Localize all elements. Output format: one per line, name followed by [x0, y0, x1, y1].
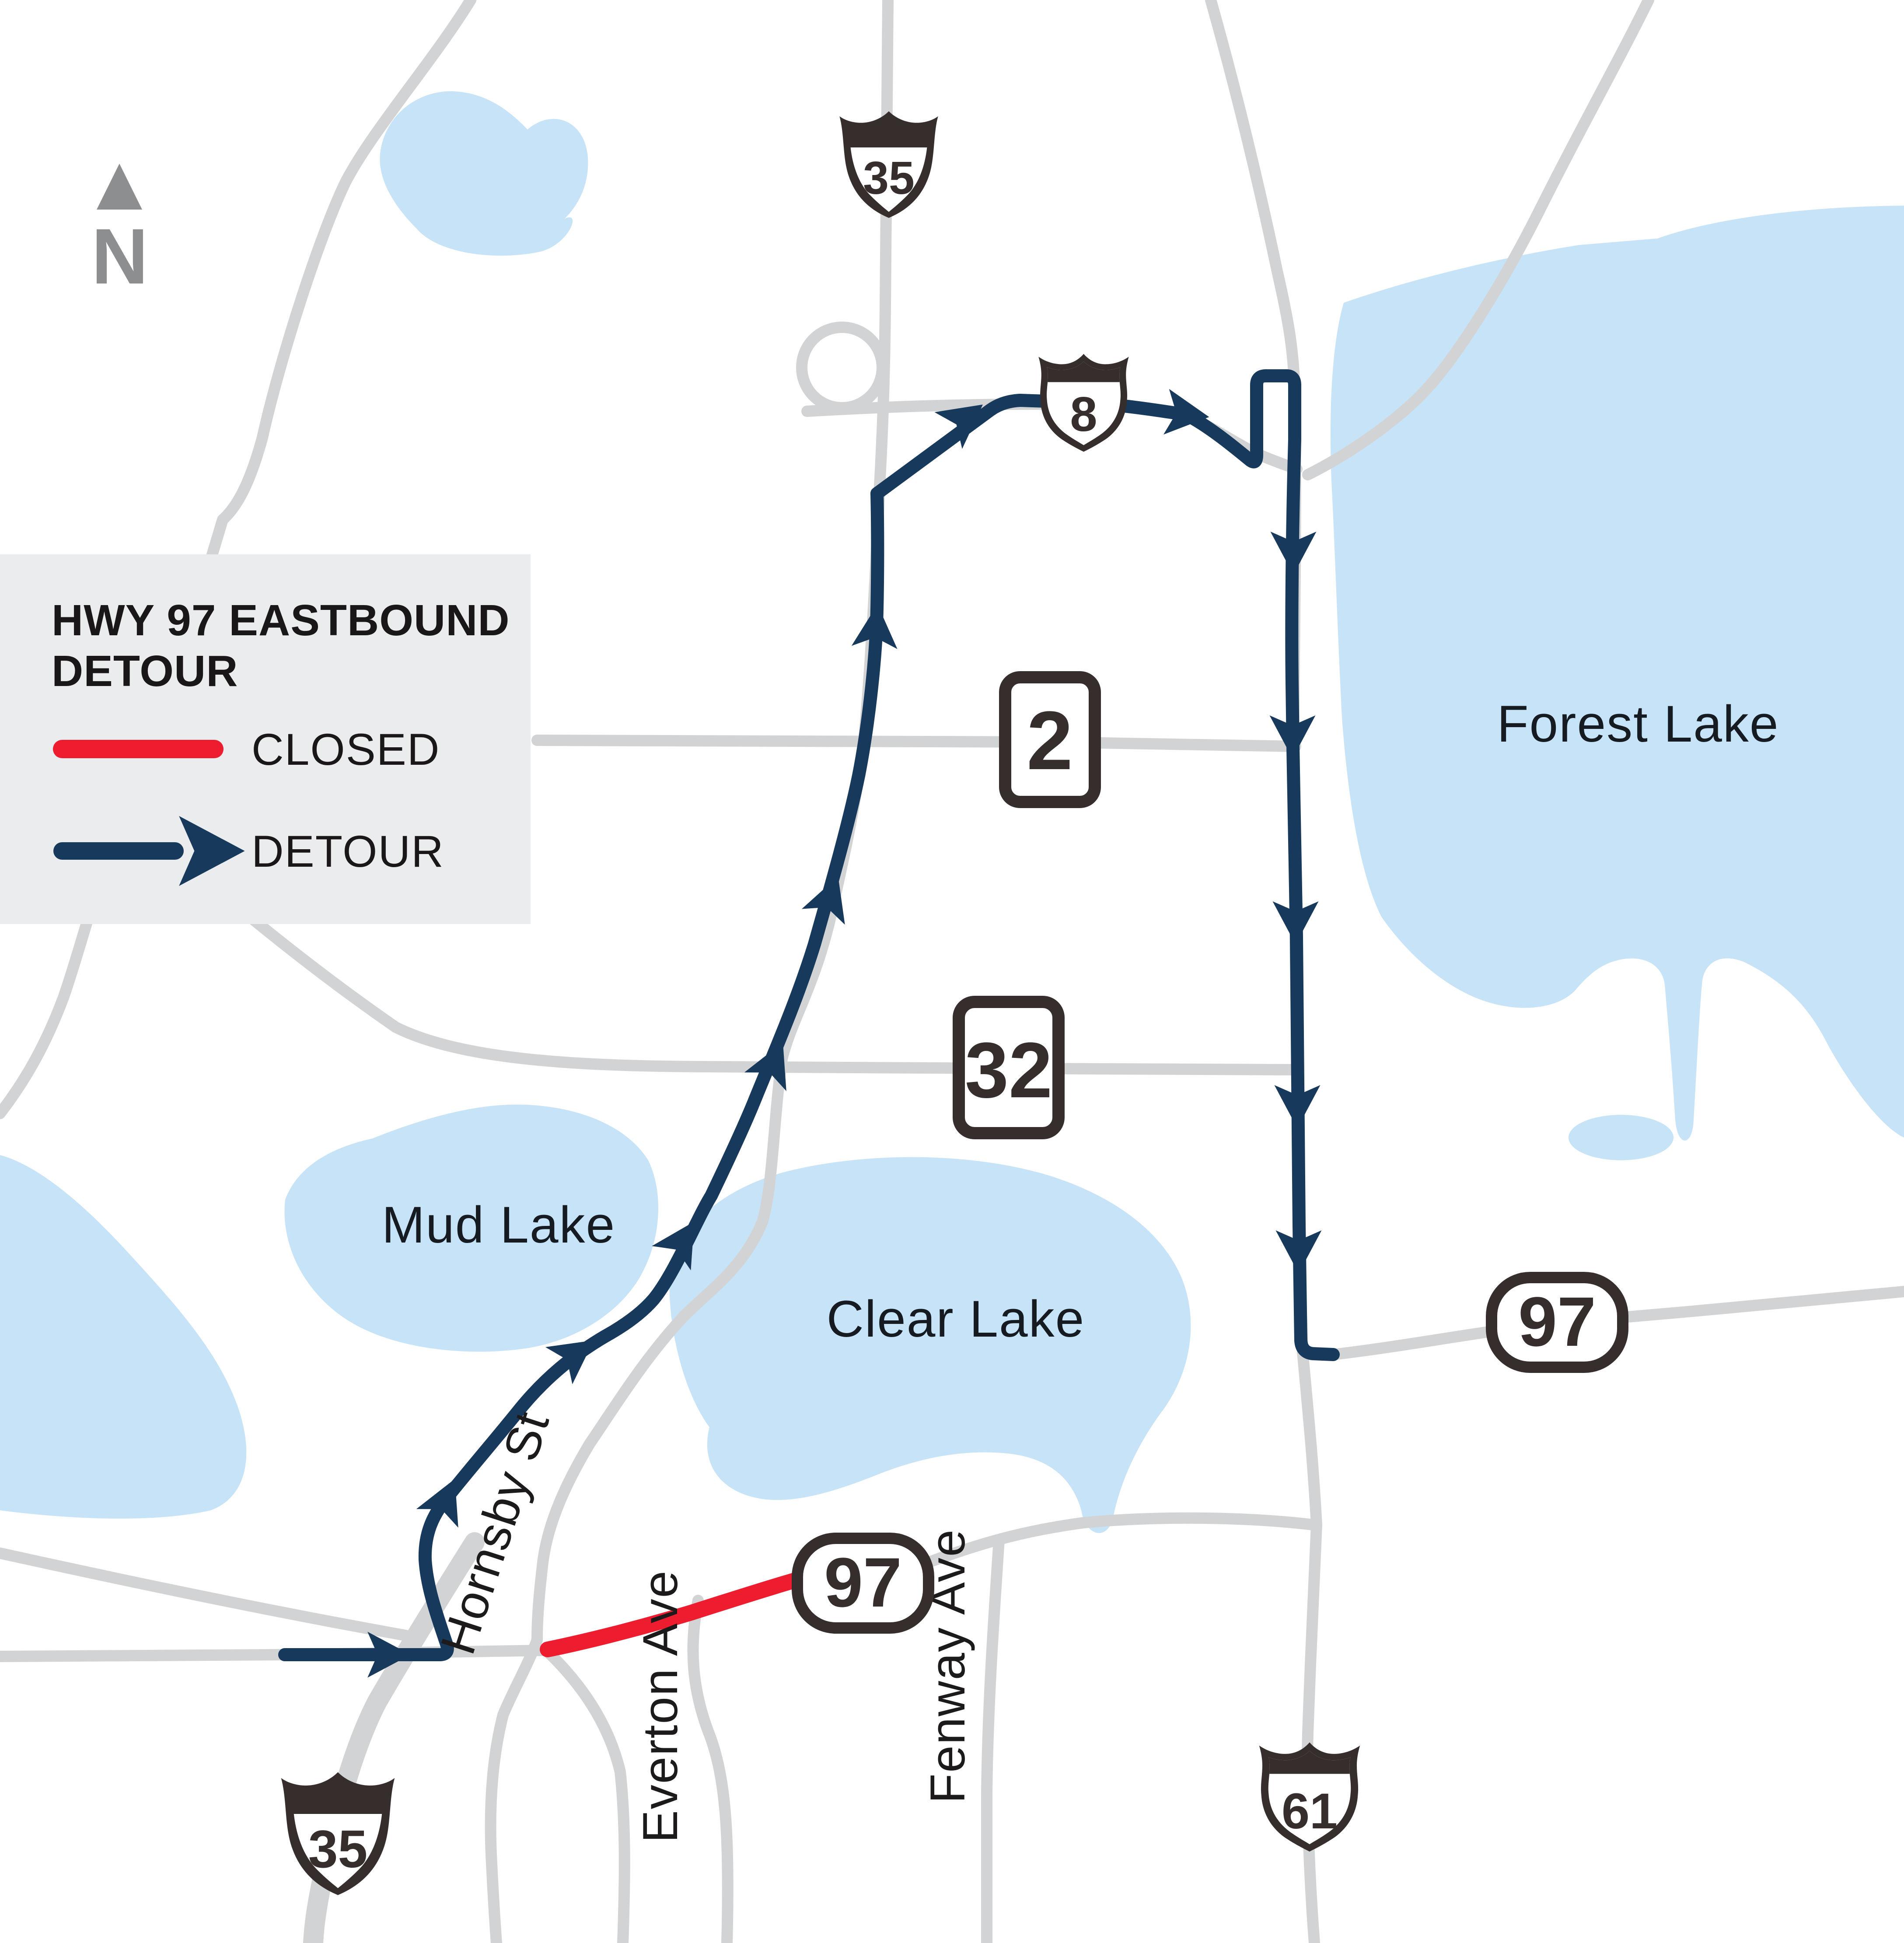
legend-closed-label: CLOSED	[252, 725, 440, 774]
legend-detour-label: DETOUR	[252, 826, 444, 876]
north-arrow-label: N	[91, 213, 148, 301]
lake-label-forest: Forest Lake	[1497, 695, 1779, 753]
svg-text:8: 8	[1070, 387, 1097, 441]
shield-mn97-center: 97	[797, 1538, 929, 1628]
legend-title-line1: HWY 97 EASTBOUND	[52, 596, 510, 645]
lake-label-mud: Mud Lake	[382, 1196, 615, 1254]
shield-mn97-right: 97	[1492, 1278, 1623, 1367]
svg-text:35: 35	[863, 152, 915, 204]
detour-map: Forest Lake Mud Lake Clear Lake Hornsby …	[0, 0, 1904, 1943]
svg-text:97: 97	[1518, 1282, 1596, 1361]
svg-text:32: 32	[965, 1026, 1052, 1114]
street-label-everton: Everton Ave	[633, 1570, 688, 1843]
legend: HWY 97 EASTBOUND DETOUR CLOSED DETOUR	[0, 554, 531, 924]
svg-text:61: 61	[1282, 1783, 1338, 1839]
lake-label-clear: Clear Lake	[827, 1290, 1085, 1348]
road-route2	[537, 740, 1296, 746]
svg-text:35: 35	[308, 1819, 368, 1879]
lake-forest-pond	[1569, 1115, 1673, 1160]
shield-mn2: 2	[1005, 677, 1095, 802]
svg-text:97: 97	[824, 1543, 902, 1621]
legend-title-line2: DETOUR	[52, 647, 238, 696]
svg-text:2: 2	[1027, 694, 1073, 787]
shield-mn32: 32	[959, 1002, 1059, 1133]
